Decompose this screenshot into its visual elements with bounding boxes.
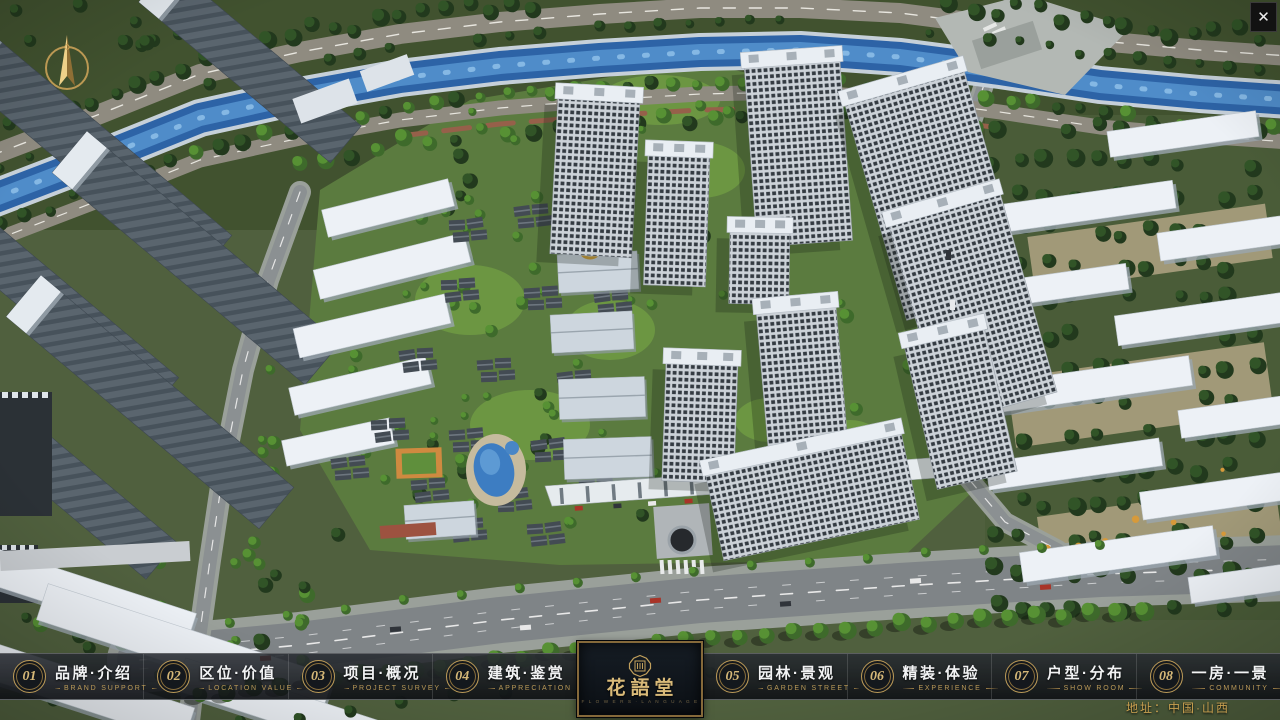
nav-number-badge: 02 — [157, 660, 190, 693]
nav-cn-label: 园林·景观 — [758, 662, 853, 683]
nav-cn-label: 精装·体验 — [903, 662, 998, 683]
nav-en-label: COMMUNITY — [1192, 685, 1280, 692]
bottom-navigation-bar: 01 品牌·介绍 BRAND SUPPORT 02 区位·价值 LOCATION… — [0, 653, 1280, 700]
nav-en-label: PROJECT SURVEY — [344, 685, 439, 692]
nav-item-floorplan-distribution[interactable]: 07 户型·分布 SHOW ROOM — [992, 654, 1137, 699]
nav-item-location-value[interactable]: 02 区位·价值 LOCATION VALUE — [144, 654, 288, 699]
nav-number-badge: 04 — [446, 660, 479, 693]
nav-en-label: BRAND SUPPORT — [55, 685, 150, 692]
nav-number-badge: 08 — [1150, 660, 1183, 693]
nav-cn-label: 品牌·介绍 — [55, 662, 150, 683]
nav-number-badge: 01 — [13, 660, 46, 693]
close-icon: ✕ — [1257, 8, 1270, 26]
nav-item-garden-landscape[interactable]: 05 园林·景观 GARDEN STREET — [703, 654, 848, 699]
nav-item-interior-experience[interactable]: 06 精装·体验 EXPERIENCE — [848, 654, 993, 699]
nav-en-label: EXPERIENCE — [903, 685, 998, 692]
nav-cn-label: 一房·一景 — [1192, 662, 1280, 683]
masterplan-aerial-render — [0, 0, 1280, 720]
nav-item-room-view[interactable]: 08 一房·一景 COMMUNITY — [1137, 654, 1280, 699]
nav-number-badge: 05 — [716, 660, 749, 693]
brand-subtitle: F L O W E R S · L A N G U A G E — [581, 699, 698, 704]
project-address: 地址：中国·山西 — [1126, 699, 1230, 716]
nav-en-label: LOCATION VALUE — [199, 685, 294, 692]
nav-number-badge: 07 — [1005, 660, 1038, 693]
nav-number-badge: 06 — [861, 660, 894, 693]
nav-en-label: APPRECIATION — [488, 685, 583, 692]
nav-item-project-overview[interactable]: 03 项目·概况 PROJECT SURVEY — [289, 654, 433, 699]
nav-item-brand-intro[interactable]: 01 品牌·介绍 BRAND SUPPORT — [0, 654, 144, 699]
nav-en-label: SHOW ROOM — [1047, 685, 1142, 692]
nav-item-architecture-appreciation[interactable]: 04 建筑·鉴赏 APPRECIATION — [433, 654, 577, 699]
nav-cn-label: 项目·概况 — [344, 662, 439, 683]
nav-cn-label: 区位·价值 — [199, 662, 294, 683]
nav-cn-label: 户型·分布 — [1047, 662, 1142, 683]
nav-en-label: GARDEN STREET — [758, 685, 853, 692]
brand-name: 花語堂 — [601, 679, 678, 698]
nav-group-left: 01 品牌·介绍 BRAND SUPPORT 02 区位·价值 LOCATION… — [0, 654, 577, 699]
nav-group-right: 05 园林·景观 GARDEN STREET 06 精装·体验 EXPERIEN… — [703, 654, 1280, 699]
sales-presentation-window: ✕ 01 品牌·介绍 BRAND SUPPORT 02 区位·价值 LOCATI… — [0, 0, 1280, 720]
seal-emblem-icon — [628, 654, 652, 678]
brand-logo-plaque: 花語堂 F L O W E R S · L A N G U A G E — [577, 641, 703, 717]
nav-number-badge: 03 — [302, 660, 335, 693]
close-button[interactable]: ✕ — [1250, 2, 1277, 32]
compass-icon — [36, 30, 98, 105]
nav-cn-label: 建筑·鉴赏 — [488, 662, 583, 683]
